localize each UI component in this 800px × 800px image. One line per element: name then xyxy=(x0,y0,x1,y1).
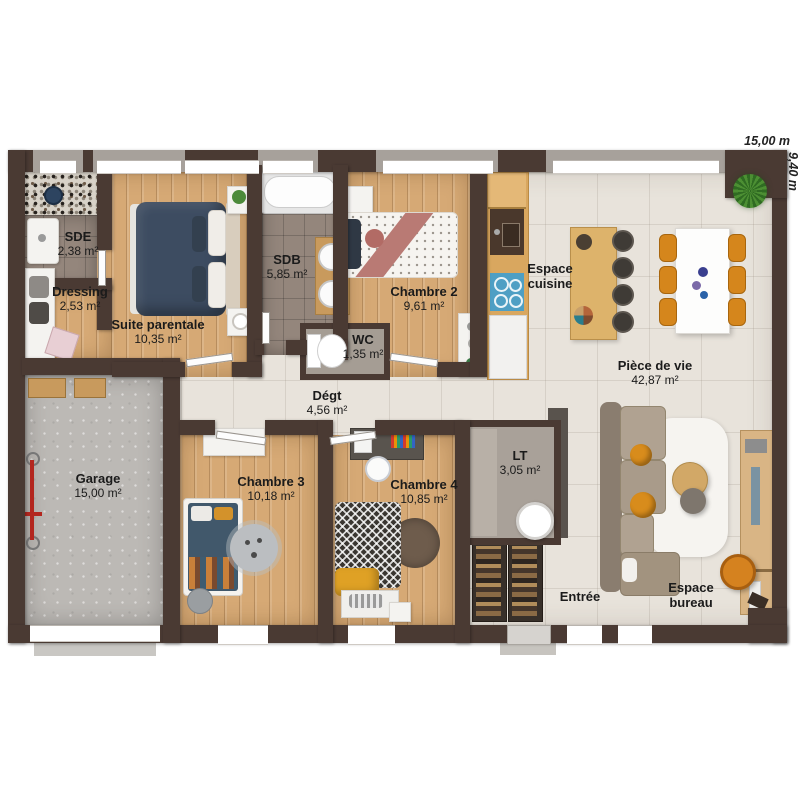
window-piece-de-vie xyxy=(553,160,719,174)
entrance-door xyxy=(507,625,551,645)
wall-corridor-bottom-a xyxy=(180,420,215,435)
sofa-seat xyxy=(620,514,654,556)
round-pillow xyxy=(365,229,384,248)
bed-blanket xyxy=(349,212,434,278)
dining-chair xyxy=(728,234,746,262)
wall-sde-right xyxy=(97,172,112,250)
shower-drain xyxy=(38,234,46,242)
wall-sde-right-lower xyxy=(97,284,112,330)
shoe-cabinet xyxy=(472,542,507,622)
dining-chair xyxy=(659,266,677,294)
door-sde xyxy=(98,250,106,286)
nightstand xyxy=(389,602,411,622)
bed-cushion xyxy=(192,266,206,302)
kitchen-sink-unit xyxy=(490,209,524,255)
wall-garage-right xyxy=(163,358,180,643)
wall-chambre2-right xyxy=(470,165,487,377)
window-chambre2-left xyxy=(263,160,313,174)
window-sdb xyxy=(185,160,259,174)
burner xyxy=(509,294,523,308)
laptop xyxy=(745,439,767,453)
shoe-shelves xyxy=(476,546,501,616)
bed-pillow xyxy=(208,262,226,308)
floor-plan: SDE 2,38 m² Dressing 2,53 m² Suite paren… xyxy=(8,150,787,658)
sofa-cushion xyxy=(630,444,652,466)
bike-handlebar xyxy=(22,512,42,516)
shoe-cabinet xyxy=(508,542,543,622)
garage-shelf xyxy=(74,378,106,398)
lt-door-swing xyxy=(471,429,497,536)
clothes-pile xyxy=(29,302,49,324)
dining-chair xyxy=(659,298,677,326)
table-deco xyxy=(692,281,701,290)
wall-corridor-top-c xyxy=(437,362,470,377)
dimension-depth-label: 9,40 m xyxy=(786,152,800,191)
fridge xyxy=(489,315,527,379)
faucet xyxy=(494,229,500,235)
kitchen-counter xyxy=(487,172,529,380)
wall-corridor-top-a xyxy=(112,362,185,377)
rug-dot xyxy=(251,552,257,558)
pouf xyxy=(187,588,213,614)
dining-chair xyxy=(728,298,746,326)
garage-floor xyxy=(25,375,163,625)
deco-bowl xyxy=(576,234,592,250)
wall-chambre4-right xyxy=(455,420,470,643)
garage-shelf xyxy=(28,378,66,398)
side-table xyxy=(680,488,706,514)
kitchen-cabinet xyxy=(488,173,526,209)
wall-chambre3-chambre4 xyxy=(318,420,333,643)
garage-door xyxy=(30,625,160,642)
striped-pillow xyxy=(349,594,383,608)
dining-chair xyxy=(728,266,746,294)
bed-pillow xyxy=(191,506,212,521)
floor-plan-canvas: 15,00 m 9,40 m xyxy=(0,0,800,800)
window-suite xyxy=(97,160,181,174)
shoe-shelves xyxy=(512,546,537,616)
rug-dot xyxy=(257,538,262,543)
plant-pot xyxy=(232,190,246,204)
bar-stool xyxy=(612,311,634,333)
round-rug xyxy=(230,524,278,572)
monitor xyxy=(751,467,760,525)
bathtub-basin xyxy=(264,176,336,208)
bar-stool xyxy=(612,284,634,306)
toilet-bowl xyxy=(317,334,347,368)
dimension-width-label: 15,00 m xyxy=(680,134,790,148)
rug-dot xyxy=(245,540,250,545)
window-sde xyxy=(40,160,76,174)
wall-sdb-chambre2 xyxy=(333,165,348,360)
sofa-pillow xyxy=(622,558,637,582)
bed-headboard xyxy=(226,202,240,316)
cooktop xyxy=(490,273,524,311)
sofa-cushion xyxy=(630,492,656,518)
bed-blanket xyxy=(189,557,237,589)
window-chambre3 xyxy=(218,625,268,645)
chambre4-bed xyxy=(333,502,407,622)
suite-bed xyxy=(120,202,246,316)
window-bureau-1 xyxy=(567,625,602,645)
bed-pillow xyxy=(208,210,226,256)
burner xyxy=(509,279,522,292)
sink-basin xyxy=(502,223,520,247)
bathtub xyxy=(258,170,342,214)
bar-stool xyxy=(612,230,634,252)
table-deco xyxy=(698,267,708,277)
burner xyxy=(494,294,508,308)
table-deco xyxy=(700,291,708,299)
sofa xyxy=(600,400,680,595)
window-chambre4 xyxy=(348,625,395,645)
door-sdb xyxy=(262,312,270,344)
bar-stool xyxy=(612,257,634,279)
dining-table xyxy=(675,228,730,334)
bed-cushion xyxy=(192,216,206,252)
wall-corridor-bottom-c xyxy=(375,420,462,435)
dining-chair xyxy=(659,234,677,262)
bike-frame xyxy=(30,460,34,540)
desk-chair xyxy=(720,554,756,590)
chambre4-chair xyxy=(365,456,391,482)
clothes-pile xyxy=(29,276,49,298)
bed-pillow xyxy=(214,507,233,520)
sde-sink-bowl xyxy=(44,186,63,205)
chambre2-bed xyxy=(340,212,458,278)
window-bureau-2 xyxy=(618,625,652,645)
burner xyxy=(494,277,509,292)
washing-machine xyxy=(516,502,554,540)
sofa-back xyxy=(600,402,622,592)
corner-plant xyxy=(733,174,767,208)
window-chambre2-right xyxy=(383,160,493,174)
fruit-bowl xyxy=(574,306,593,325)
wall-right xyxy=(772,150,787,643)
wall-left xyxy=(8,150,25,643)
wall-corridor-top-b xyxy=(232,362,262,377)
